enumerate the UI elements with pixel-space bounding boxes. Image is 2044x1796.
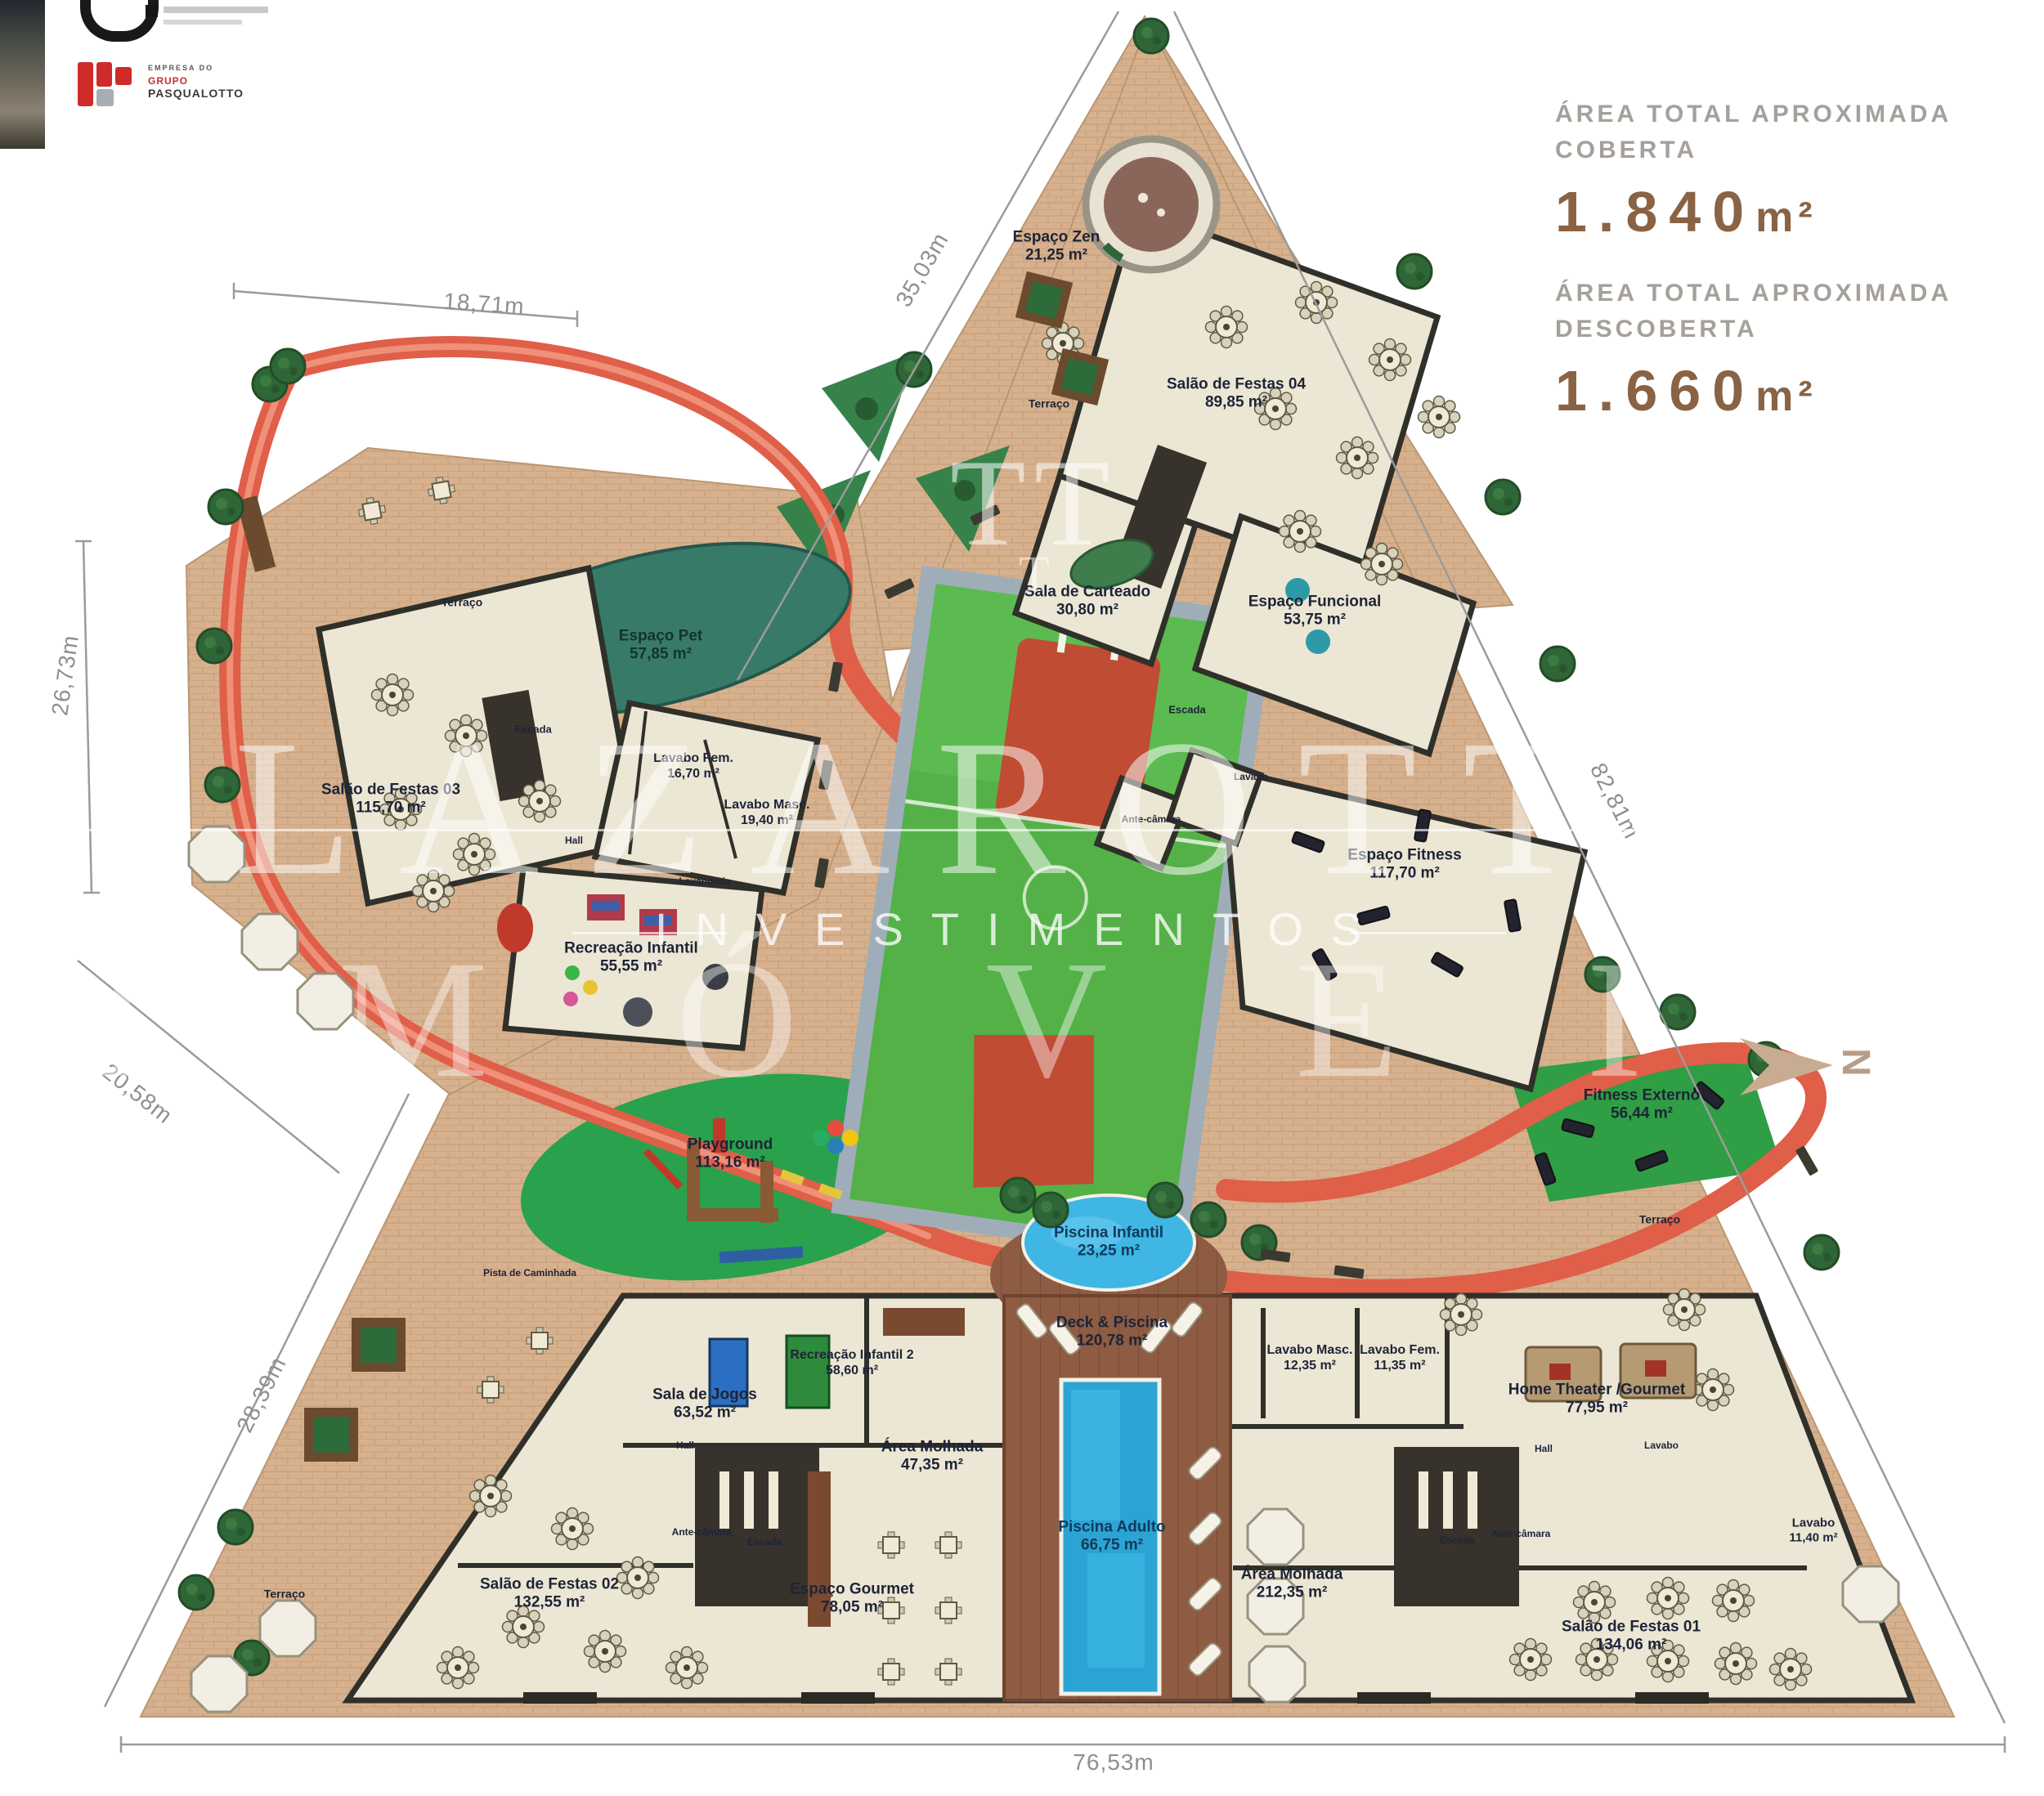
area-stats: ÁREA TOTAL APROXIMADA COBERTA 1.840m² ÁR… [1555,96,2013,455]
pasqualotto-line2: GRUPO [148,75,244,87]
pasqualotto-line3: PASQUALOTTO [148,87,244,100]
descoberta-prefix: ÁREA TOTAL APROXIMADA [1555,275,2013,311]
north-letter: N [1833,1048,1878,1077]
descoberta-name: DESCOBERTA [1555,311,2013,347]
site-plan-page: Espaço Zen21,25 m²TerraçoSalão de Festas… [0,0,2044,1796]
building-photo-strip [0,0,45,149]
developer-logo-text-bar [164,7,268,13]
pool-table [710,1339,747,1406]
pasqualotto-mark-icon [78,62,93,106]
developer-logo-text-bar2 [164,20,242,25]
coberta-prefix: ÁREA TOTAL APROXIMADA [1555,96,2013,132]
coberta-name: COBERTA [1555,132,2013,168]
pasqualotto-line1: EMPRESA DO [148,64,244,72]
ping-pong-table [787,1336,829,1408]
espaco-zen [1086,139,1217,270]
descoberta-value: 1.660m² [1555,358,2013,423]
coberta-value: 1.840m² [1555,179,2013,244]
developer-logo-dot [146,5,158,17]
